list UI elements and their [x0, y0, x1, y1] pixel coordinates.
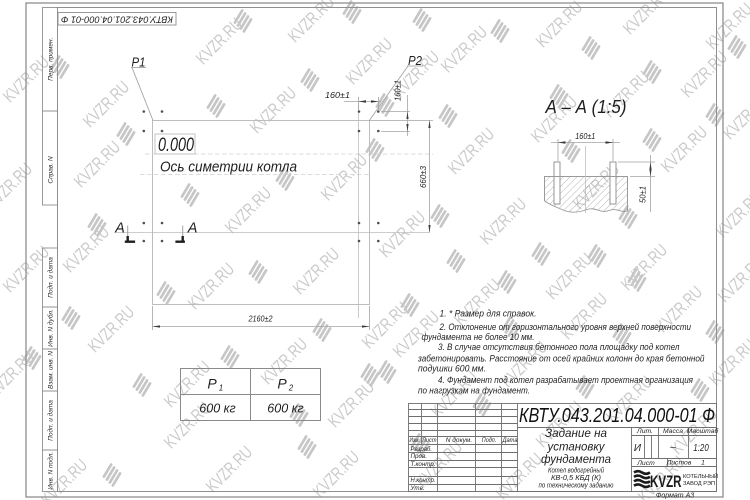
- svg-text:KVZR.RU: KVZR.RU: [284, 0, 338, 46]
- svg-text:по нагрузкам на фундамент.: по нагрузкам на фундамент.: [418, 385, 530, 395]
- svg-text:забетонировать. Расстояние от: забетонировать. Расстояние от осей крайн…: [417, 353, 704, 363]
- svg-text:160±1: 160±1: [575, 131, 595, 141]
- svg-text:1:20: 1:20: [693, 443, 709, 454]
- svg-text:KVZR.RU: KVZR.RU: [246, 83, 300, 137]
- svg-text:KVZR.RU: KVZR.RU: [437, 22, 491, 76]
- svg-text:фундамента: фундамента: [541, 454, 611, 466]
- svg-text:KVZR.RU: KVZR.RU: [0, 159, 36, 213]
- svg-text:KVZR.RU: KVZR.RU: [37, 455, 91, 500]
- svg-text:50±1: 50±1: [638, 186, 648, 203]
- svg-text:Изм.: Изм.: [409, 437, 420, 444]
- svg-text:160±1: 160±1: [394, 80, 403, 101]
- svg-text:KVZR.RU: KVZR.RU: [375, 207, 429, 261]
- svg-text:KVZR.RU: KVZR.RU: [289, 244, 343, 298]
- svg-text:2. Отклонение от горизонтальн: 2. Отклонение от горизонтального уровня …: [439, 322, 691, 332]
- svg-text:KVZR.RU: KVZR.RU: [309, 447, 363, 500]
- svg-text:Формат А3: Формат А3: [656, 493, 694, 500]
- svg-text:KVZR.RU: KVZR.RU: [70, 137, 124, 191]
- svg-text:Разраб.: Разраб.: [411, 445, 433, 453]
- svg-text:KVZR: KVZR: [650, 472, 682, 491]
- svg-text:по техническому заданию: по техническому заданию: [539, 481, 614, 490]
- svg-text:KVZR.RU: KVZR.RU: [705, 335, 750, 389]
- svg-text:KVZR.RU: KVZR.RU: [712, 187, 750, 241]
- svg-text:4. Фундамент под котел разраб: 4. Фундамент под котел разрабатывает про…: [438, 375, 693, 385]
- svg-text:подушки 600 мм.: подушки 600 мм.: [418, 364, 486, 374]
- svg-text:KVZR.RU: KVZR.RU: [714, 252, 750, 306]
- svg-text:Пров.: Пров.: [411, 453, 428, 460]
- svg-text:Перв. примен.: Перв. примен.: [48, 37, 55, 80]
- svg-text:0.000: 0.000: [158, 135, 194, 156]
- svg-text:Подп. и дата: Подп. и дата: [47, 400, 55, 441]
- svg-text:Масштаб: Масштаб: [687, 427, 720, 435]
- svg-text:Справ. N: Справ. N: [48, 156, 55, 184]
- svg-text:ЗАВОД РЭП: ЗАВОД РЭП: [683, 481, 715, 487]
- svg-text:3. В случае отсутствия бетонн: 3. В случае отсутствия бетонного пола пл…: [438, 342, 680, 352]
- svg-text:Лист: Лист: [636, 460, 655, 467]
- svg-text:Подп.: Подп.: [482, 436, 497, 444]
- svg-text:KVZR.RU: KVZR.RU: [657, 122, 711, 176]
- svg-text:KVZR.RU: KVZR.RU: [221, 183, 275, 237]
- svg-text:Дата: Дата: [502, 437, 518, 444]
- svg-text:1. * Размер для справок.: 1. * Размер для справок.: [440, 309, 537, 319]
- svg-text:1: 1: [219, 384, 223, 393]
- svg-text:КВТУ.043.201.04.000-01 Ф: КВТУ.043.201.04.000-01 Ф: [519, 405, 715, 427]
- svg-text:KVZR.RU: KVZR.RU: [192, 14, 246, 68]
- svg-text:Подп. и дата: Подп. и дата: [47, 257, 55, 298]
- svg-text:Задание на: Задание на: [545, 428, 607, 440]
- svg-text:KVZR.RU: KVZR.RU: [342, 34, 396, 88]
- svg-text:1: 1: [701, 459, 705, 466]
- svg-text:KVZR.RU: KVZR.RU: [476, 194, 530, 248]
- svg-text:KVZR.RU: KVZR.RU: [492, 449, 546, 500]
- svg-text:–: –: [669, 442, 676, 453]
- svg-text:KVZR.RU: KVZR.RU: [84, 302, 138, 356]
- svg-text:Инв. N подл.: Инв. N подл.: [47, 452, 55, 490]
- svg-text:KVZR.RU: KVZR.RU: [59, 222, 113, 276]
- svg-text:Масса: Масса: [663, 428, 683, 435]
- svg-text:КОТЕЛЬНЫЙ: КОТЕЛЬНЫЙ: [683, 472, 718, 480]
- svg-text:А: А: [114, 221, 125, 237]
- svg-text:И: И: [634, 443, 642, 454]
- svg-text:660±3: 660±3: [419, 165, 428, 188]
- svg-text:Инв. N дубл.: Инв. N дубл.: [47, 309, 55, 347]
- svg-text:2: 2: [288, 384, 294, 393]
- svg-text:КВТУ.043.201.04.000-01 Ф: КВТУ.043.201.04.000-01 Ф: [61, 13, 173, 24]
- svg-text:фундамента не более 10 мм.: фундамента не более 10 мм.: [422, 332, 535, 342]
- svg-text:600 кг: 600 кг: [267, 402, 303, 416]
- svg-text:А: А: [187, 221, 198, 237]
- svg-text:P: P: [277, 376, 287, 392]
- svg-text:Н.контр.: Н.контр.: [411, 477, 436, 484]
- svg-text:N докум.: N докум.: [446, 436, 473, 444]
- svg-text:Лит.: Лит.: [636, 428, 653, 435]
- svg-text:600 кг: 600 кг: [199, 402, 235, 416]
- svg-text:2160±2: 2160±2: [248, 315, 273, 324]
- svg-text:P: P: [207, 376, 217, 392]
- svg-text:установку: установку: [547, 442, 606, 454]
- svg-text:KVZR.RU: KVZR.RU: [202, 442, 256, 496]
- svg-text:Утв.: Утв.: [410, 485, 425, 492]
- svg-text:Т.контр.: Т.контр.: [411, 461, 436, 468]
- svg-text:KVZR.RU: KVZR.RU: [557, 289, 611, 343]
- svg-text:Взам. инв. N: Взам. инв. N: [48, 351, 55, 389]
- svg-text:KVZR.RU: KVZR.RU: [184, 259, 238, 313]
- svg-text:KVZR.RU: KVZR.RU: [444, 124, 498, 178]
- svg-text:KVZR.RU: KVZR.RU: [617, 240, 671, 294]
- svg-text:А – А (1:5): А – А (1:5): [545, 97, 627, 117]
- svg-text:Ось симетрии котла: Ось симетрии котла: [160, 160, 297, 176]
- svg-text:KVZR.RU: KVZR.RU: [619, 0, 673, 38]
- svg-text:160±1: 160±1: [325, 91, 350, 100]
- svg-text:KVZR.RU: KVZR.RU: [317, 150, 371, 204]
- svg-text:Листов: Листов: [666, 459, 692, 466]
- svg-text:Лист: Лист: [421, 437, 437, 444]
